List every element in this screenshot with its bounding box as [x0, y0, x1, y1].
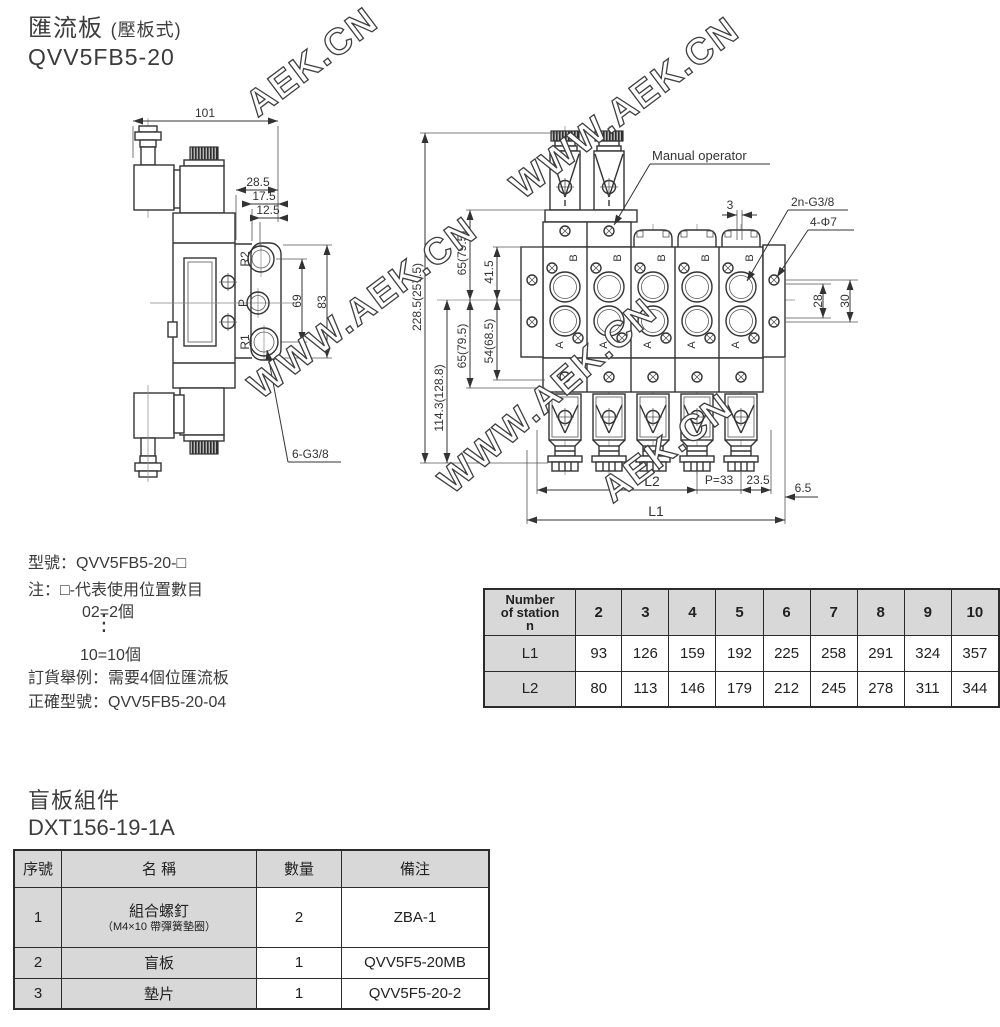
port-b-label: B — [656, 254, 668, 261]
l2-value: 80 — [576, 671, 622, 707]
l1-value: 225 — [763, 635, 810, 671]
dim-28: 28 — [811, 294, 825, 308]
dim-6-5: 6.5 — [795, 481, 812, 495]
technical-drawings: R2 P R1 101 28.5 17.5 12.5 69 — [0, 0, 1000, 580]
station-col: 6 — [763, 589, 810, 635]
dim-12-5: 12.5 — [256, 203, 280, 217]
port-b-label: B — [568, 254, 580, 261]
dim-28-5: 28.5 — [246, 175, 270, 189]
table-row: 3 墊片 1 QVV5F5-20-2 — [14, 978, 489, 1009]
part-qty: 1 — [257, 947, 342, 978]
l2-value: 113 — [622, 671, 669, 707]
station-col: 7 — [810, 589, 857, 635]
station-col: 3 — [622, 589, 669, 635]
parts-header-name: 名 稱 — [62, 850, 257, 887]
parts-header-qty: 數量 — [257, 850, 342, 887]
table-row: 1 組合螺釘 （M4×10 帶彈簧墊圈） 2 ZBA-1 — [14, 887, 489, 947]
port-b-label: B — [700, 254, 712, 261]
port-a-label: A — [642, 341, 654, 349]
part-remark: ZBA-1 — [342, 887, 490, 947]
station-col: 5 — [716, 589, 763, 635]
l2-value: 344 — [951, 671, 999, 707]
l1-value: 192 — [716, 635, 763, 671]
l2-value: 179 — [716, 671, 763, 707]
station-dimension-table: Number of station n 2 3 4 5 6 7 8 9 10 L… — [483, 588, 1000, 708]
l2-value: 146 — [669, 671, 716, 707]
ordering-ellipsis: ⋮ — [93, 610, 115, 636]
dim-114: 114.3(128.8) — [432, 364, 446, 431]
label-2n-g38: 2n-G3/8 — [791, 195, 835, 209]
l2-value: 245 — [810, 671, 857, 707]
port-label-r1: R1 — [238, 334, 252, 350]
part-name: 墊片 — [62, 978, 257, 1009]
part-remark: QVV5F5-20MB — [342, 947, 490, 978]
dim-3: 3 — [727, 198, 734, 212]
part-qty: 2 — [257, 887, 342, 947]
table-row: 2 盲板 1 QVV5F5-20MB — [14, 947, 489, 978]
port-a-label: A — [730, 341, 742, 349]
ordering-order-line: 訂貨舉例：需要4個位匯流板 — [28, 664, 229, 688]
port-label-r2: R2 — [238, 251, 252, 267]
dim-54: 54(68.5) — [482, 319, 496, 364]
dim-17-5: 17.5 — [252, 189, 276, 203]
parts-header-remark: 備注 — [342, 850, 490, 887]
l1-value: 324 — [904, 635, 951, 671]
dim-101: 101 — [195, 106, 215, 120]
blank-plate-model: DXT156-19-1A — [28, 815, 175, 841]
l2-value: 311 — [904, 671, 951, 707]
port-b-label: B — [612, 254, 624, 261]
dim-65-bottom: 65(79.5) — [455, 324, 469, 369]
l1-row-label: L1 — [484, 635, 576, 671]
port-label-p: P — [236, 299, 250, 307]
station-col: 2 — [576, 589, 622, 635]
dim-69: 69 — [290, 294, 304, 308]
l2-row-label: L2 — [484, 671, 576, 707]
left-drawing: R2 P R1 101 28.5 17.5 12.5 69 — [133, 106, 341, 482]
part-no: 3 — [14, 978, 62, 1009]
table-row: L2 80 113 146 179 212 245 278 311 344 — [484, 671, 999, 707]
label-6-g38: 6-G3/8 — [292, 447, 329, 461]
label-manual-operator: Manual operator — [652, 148, 747, 163]
station-table-header: Number of station n — [484, 589, 576, 635]
part-qty: 1 — [257, 978, 342, 1009]
port-a-label: A — [554, 341, 566, 349]
l1-value: 258 — [810, 635, 857, 671]
label-4-phi7: 4-Φ7 — [810, 215, 837, 229]
datasheet-page: 匯流板 (壓板式) QVV5FB5-20 — [0, 0, 1000, 1027]
l2-value: 212 — [763, 671, 810, 707]
dim-30: 30 — [838, 294, 852, 308]
dim-23-5: 23.5 — [746, 473, 770, 487]
l1-value: 291 — [857, 635, 904, 671]
part-no: 1 — [14, 887, 62, 947]
part-name: 盲板 — [62, 947, 257, 978]
l1-value: 357 — [951, 635, 999, 671]
l2-value: 278 — [857, 671, 904, 707]
dim-p33: P=33 — [705, 473, 734, 487]
station-col: 4 — [669, 589, 716, 635]
dim-83: 83 — [315, 295, 329, 309]
dim-41-5: 41.5 — [482, 260, 496, 284]
port-a-label: A — [686, 341, 698, 349]
l1-value: 126 — [622, 635, 669, 671]
blank-plate-title: 盲板組件 — [28, 783, 120, 815]
port-b-label: B — [744, 254, 756, 261]
blank-plate-parts-table: 序號 名 稱 數量 備注 1 組合螺釘 （M4×10 帶彈簧墊圈） 2 ZBA-… — [13, 849, 490, 1010]
part-name: 組合螺釘 （M4×10 帶彈簧墊圈） — [62, 887, 257, 947]
part-no: 2 — [14, 947, 62, 978]
part-remark: QVV5F5-20-2 — [342, 978, 490, 1009]
station-col: 8 — [857, 589, 904, 635]
parts-header-no: 序號 — [14, 850, 62, 887]
ordering-example-10: 10=10個 — [80, 641, 141, 665]
l1-value: 93 — [576, 635, 622, 671]
table-row: L1 93 126 159 192 225 258 291 324 357 — [484, 635, 999, 671]
ordering-correct-line: 正確型號：QVV5FB5-20-04 — [28, 688, 226, 712]
l1-value: 159 — [669, 635, 716, 671]
station-col: 10 — [951, 589, 999, 635]
dim-l1: L1 — [648, 503, 664, 519]
station-col: 9 — [904, 589, 951, 635]
